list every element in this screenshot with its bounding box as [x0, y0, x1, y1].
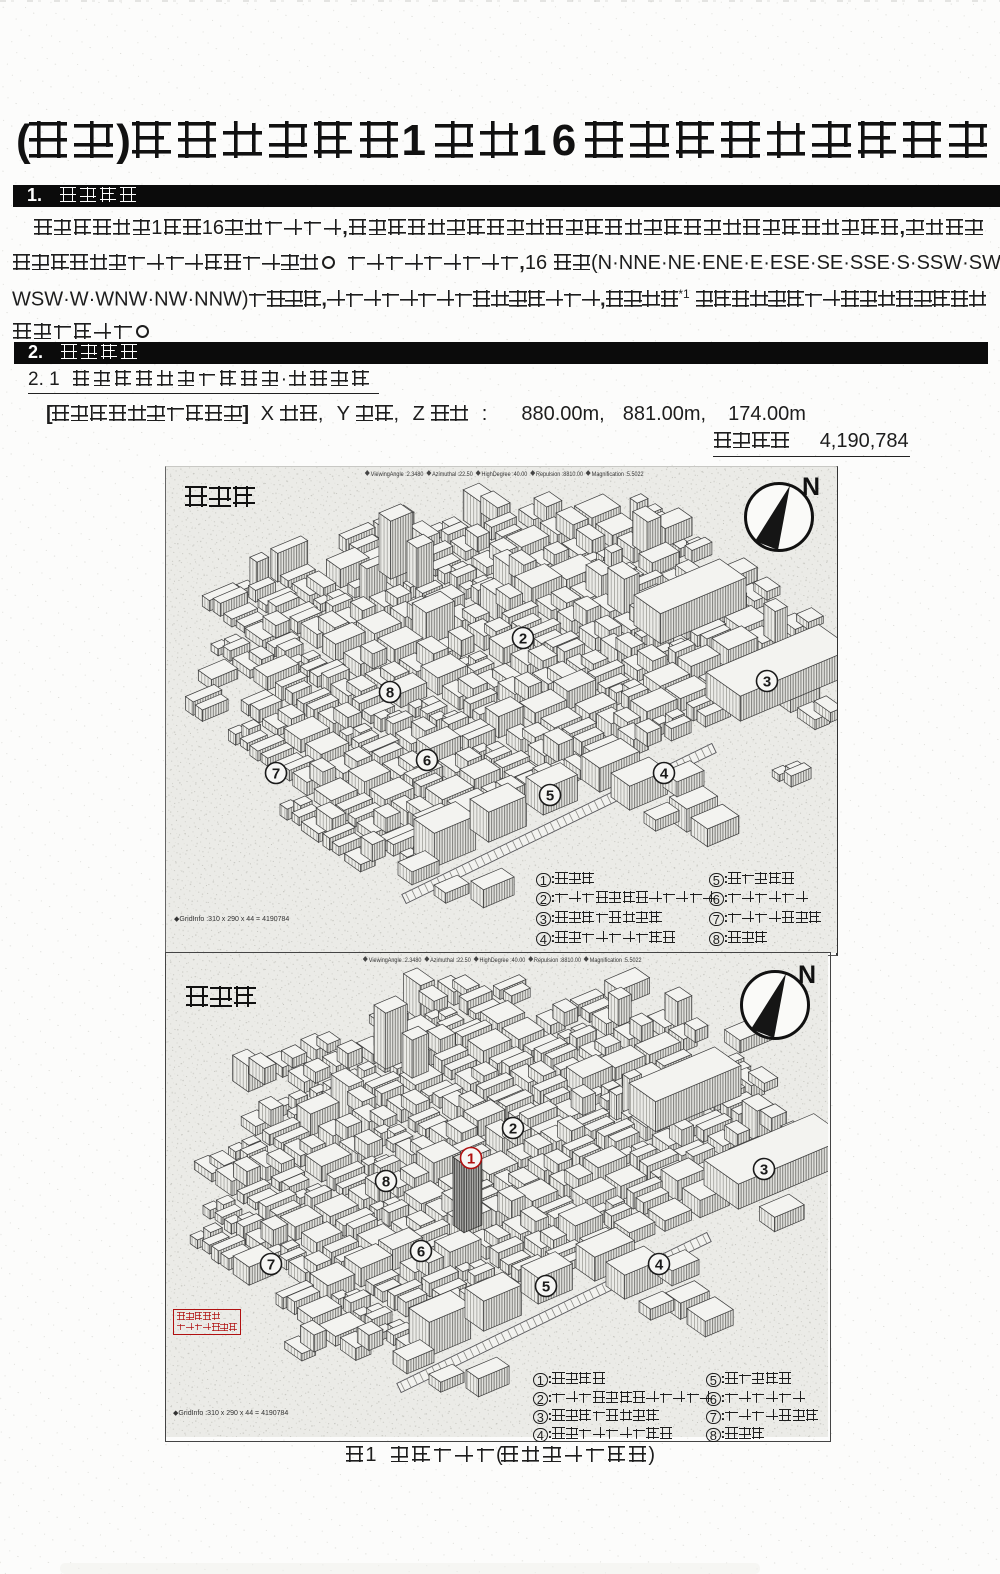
svg-text:1: 1 — [467, 1150, 475, 1167]
svg-text:5: 5 — [546, 787, 554, 804]
svg-text:7: 7 — [267, 1256, 275, 1273]
svg-text:N: N — [798, 961, 816, 989]
svg-text:8: 8 — [386, 684, 394, 701]
svg-text:N: N — [802, 473, 820, 501]
svg-text:3: 3 — [760, 1161, 768, 1178]
svg-text:5: 5 — [542, 1278, 550, 1295]
svg-text:4: 4 — [655, 1256, 664, 1273]
svg-text:2: 2 — [519, 630, 527, 647]
svg-text:4: 4 — [660, 765, 669, 782]
svg-text:6: 6 — [417, 1243, 425, 1260]
svg-text:7: 7 — [272, 765, 280, 782]
svg-text:2: 2 — [509, 1120, 517, 1137]
svg-text:6: 6 — [423, 752, 431, 769]
svg-text:3: 3 — [763, 673, 771, 690]
svg-text:8: 8 — [382, 1173, 390, 1190]
